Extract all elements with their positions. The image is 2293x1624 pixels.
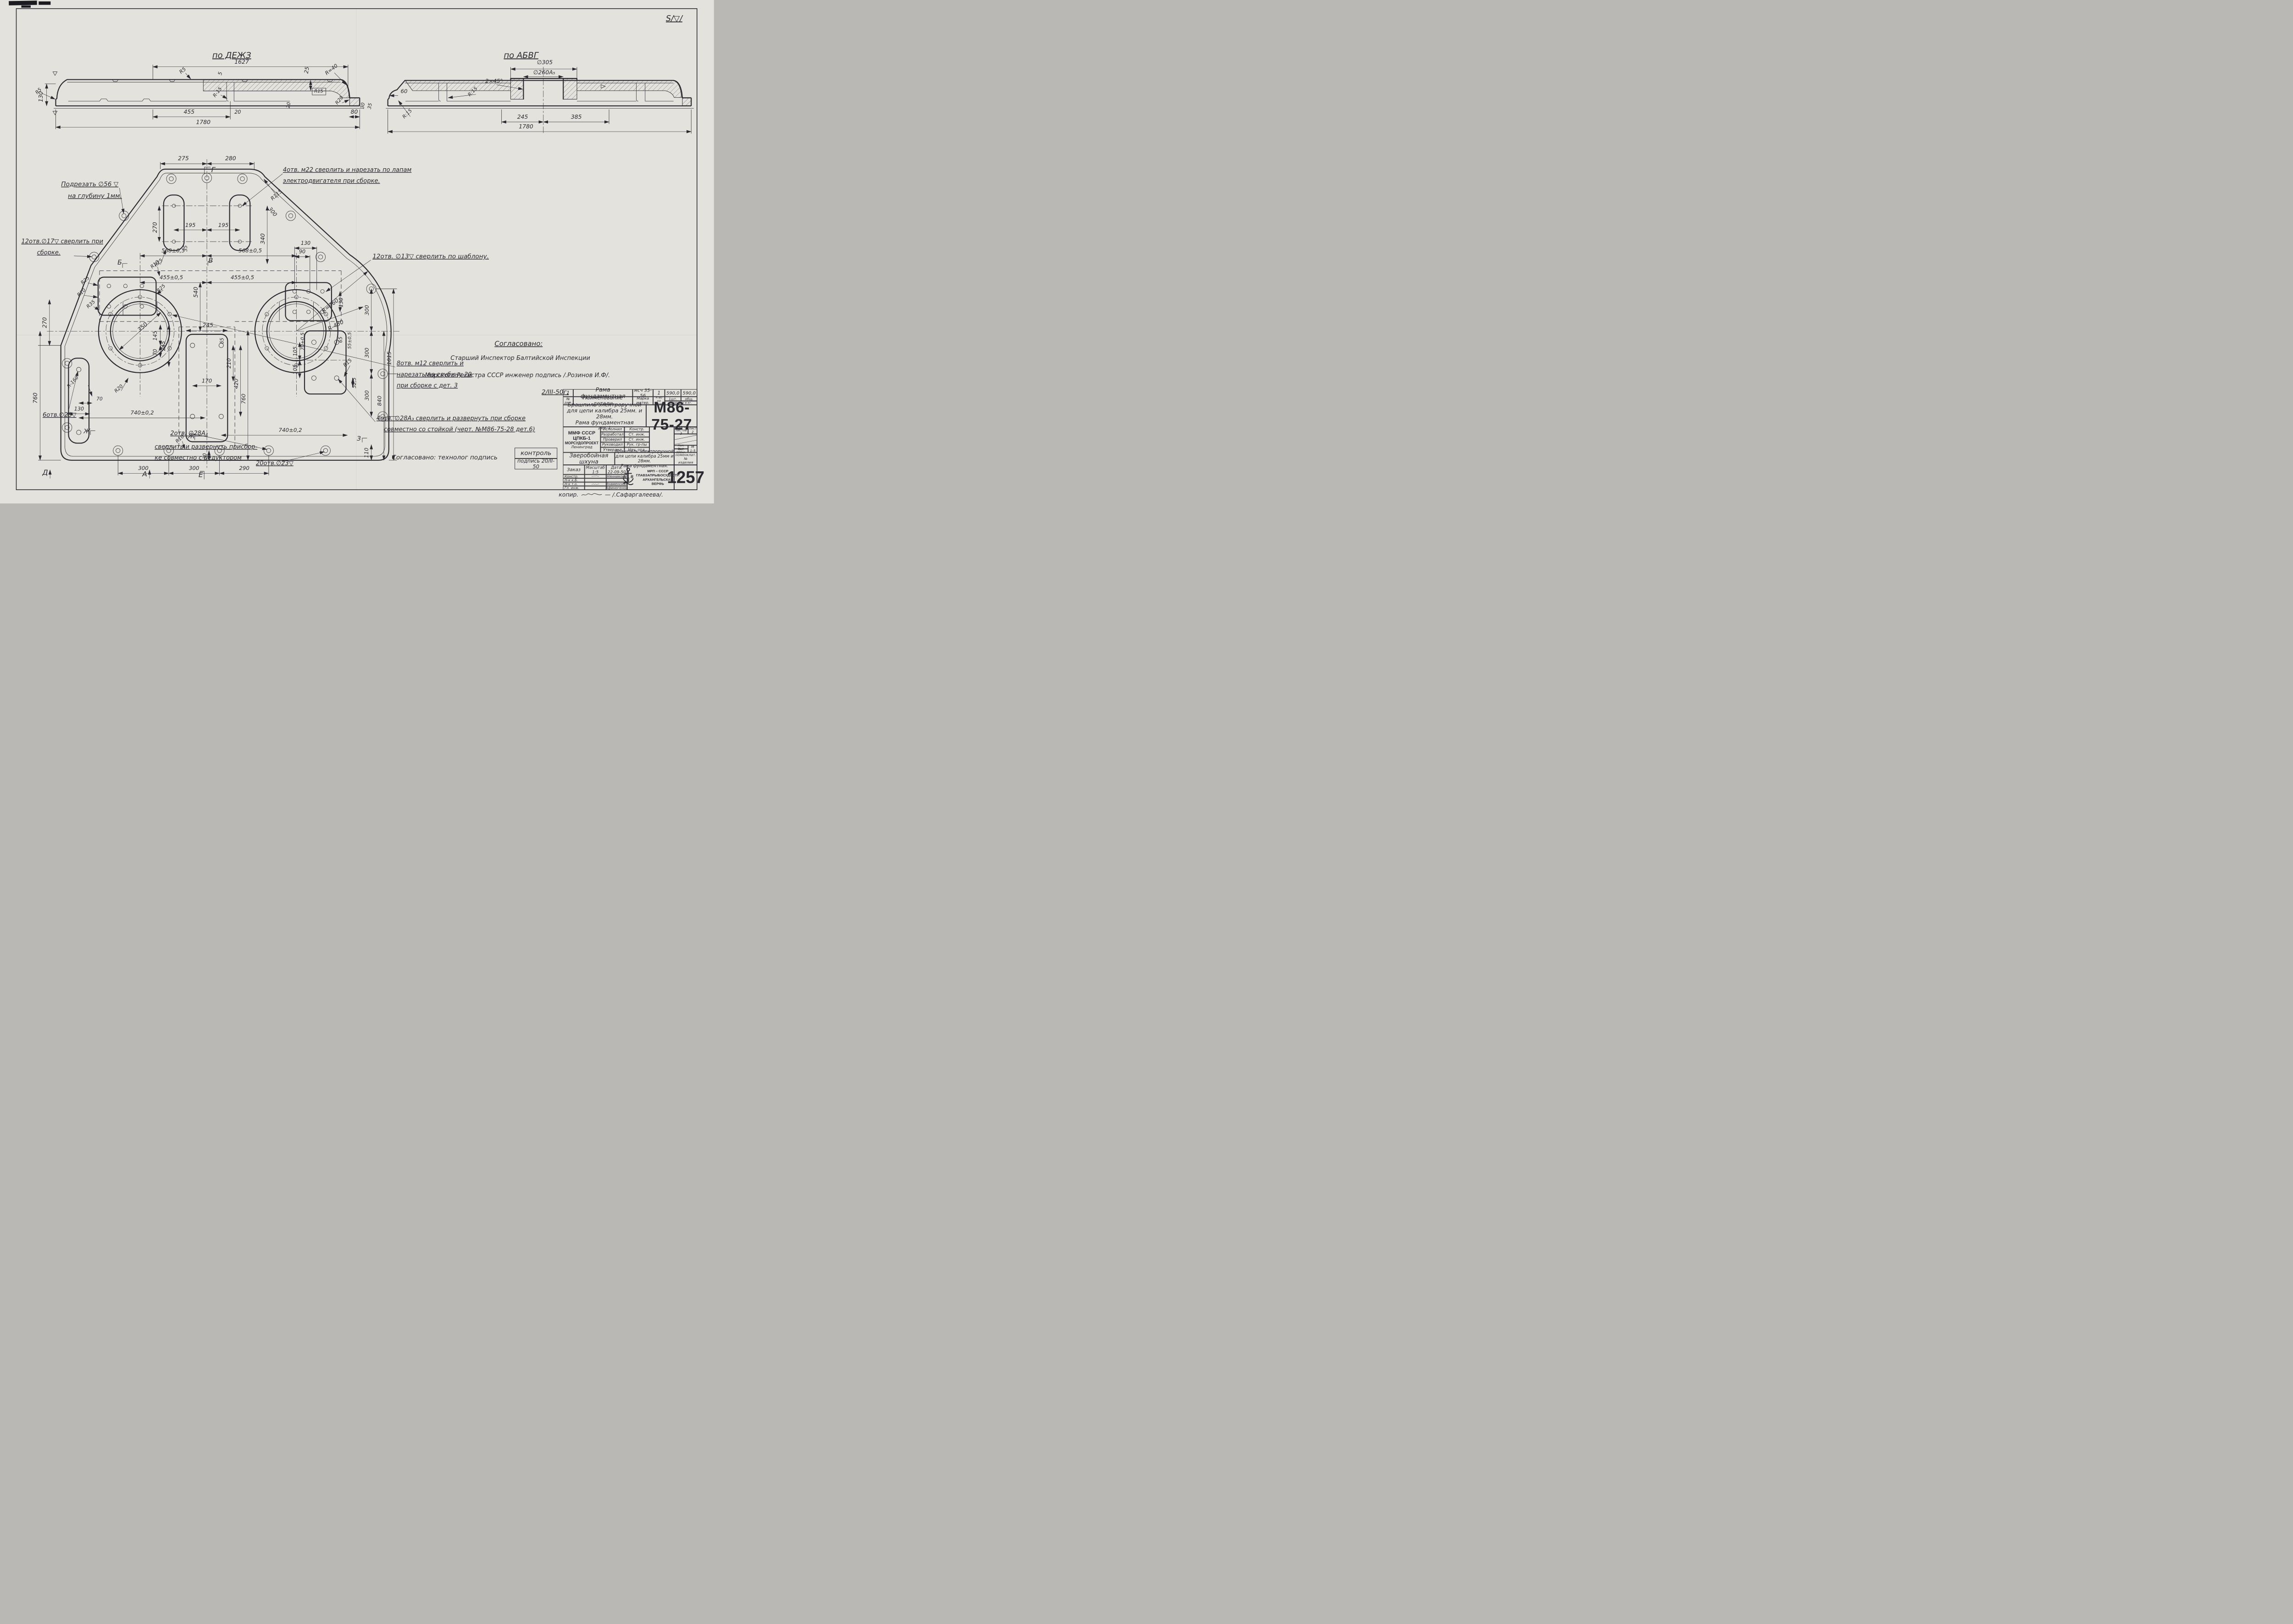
title-block: 1 Рама фундаментная мсч 35-56 1 590,0 59… bbox=[563, 389, 698, 490]
drawing-label: В bbox=[209, 257, 213, 265]
drawing-label: 105 bbox=[292, 347, 298, 356]
part-material: мсч 35-56 bbox=[633, 389, 654, 397]
drawing-label: 568±0,5 bbox=[161, 248, 185, 254]
drawing-label: R15 bbox=[342, 358, 353, 368]
drawing-label: 130 bbox=[74, 406, 84, 412]
role-title-3: Рук. гр-пы bbox=[625, 442, 650, 447]
drawing-label: Б bbox=[117, 259, 122, 266]
part-weight-each: 590,0 bbox=[665, 389, 681, 397]
drawing-label: ке совместно с редуктором bbox=[155, 455, 242, 462]
item-name: Брашпиль электроручной для цепи калибра … bbox=[615, 453, 674, 465]
nomenclature: номенклат. № изделия bbox=[674, 453, 698, 465]
drawing-label: 210 bbox=[226, 358, 232, 368]
drawing-label: R25 bbox=[156, 283, 167, 293]
drawing-label: 840 bbox=[376, 396, 382, 406]
drawing-label: Старший Инспектор Балтийской Инспекции bbox=[450, 355, 590, 362]
drawing-label: 4отв. ∅28А₃ сверлить и развернуть при сб… bbox=[377, 415, 526, 422]
drawing-label: 568±0,5 bbox=[238, 248, 262, 254]
drawing-label: 70 bbox=[152, 349, 158, 355]
signature-empty bbox=[585, 486, 606, 490]
drawing-label: 340 bbox=[259, 233, 266, 244]
drawing-label: 1780 bbox=[196, 118, 211, 125]
drawing-title-line1: Брашпиль электроручной bbox=[568, 402, 642, 408]
drawing-label: Подрезать ∅56 ▽ bbox=[61, 181, 118, 188]
drawing-label: 130 bbox=[301, 240, 310, 246]
order-label: Заказ bbox=[563, 465, 585, 475]
drawing-label: 300 bbox=[364, 348, 370, 358]
drawing-label: 245 bbox=[161, 341, 166, 351]
sheets-total: Всего листов 3 bbox=[674, 427, 688, 434]
drawing-label: 70±0,5 bbox=[300, 332, 305, 350]
drawing-label: 300 bbox=[364, 390, 370, 400]
role-title-2: Ст. инж. bbox=[625, 437, 650, 442]
drawing-label: 195 bbox=[185, 222, 195, 228]
drawing-label: ∅260А₅ bbox=[533, 69, 555, 76]
drawing-label: 20 bbox=[234, 109, 241, 115]
drawing-label: 110 bbox=[363, 447, 370, 458]
sign-label-3: Гл. инж. bbox=[563, 486, 585, 490]
drawing-label: Г bbox=[211, 166, 216, 174]
plan-view bbox=[38, 159, 399, 479]
drawing-label: электродвигателя при сборке. bbox=[283, 178, 380, 185]
drawing-title-line2: для цепи калибра 25мм. и 28мм. bbox=[564, 408, 646, 420]
scale2-label: Масштаб bbox=[586, 465, 605, 470]
drawing-label: 420 bbox=[233, 379, 239, 389]
drawing-label: R25 bbox=[80, 275, 91, 286]
drawing-label: ∅305 bbox=[537, 59, 553, 66]
drawing-label: 25 bbox=[303, 66, 310, 74]
drawing-label: Согласовано: технолог подпись bbox=[392, 454, 498, 461]
drawing-label: Ѕ/▽/ bbox=[666, 14, 683, 23]
role-title-0: Констр. bbox=[625, 427, 650, 432]
drawing-label: 1015 bbox=[386, 351, 393, 365]
drawing-label: 60 bbox=[401, 88, 408, 94]
inventory-number: 1257 bbox=[674, 465, 698, 490]
drawing-label: А bbox=[142, 470, 147, 478]
drawing-label: R10 bbox=[76, 287, 87, 298]
drawing-label: 12отв. ∅13▽ сверлить по шаблону. bbox=[372, 253, 489, 260]
drawing-label: 105 bbox=[292, 365, 298, 374]
control-stamp: контроль подпись 20/II-50 bbox=[515, 448, 557, 470]
drawing-label: 270 bbox=[41, 317, 48, 328]
drawing-label: совместно со стойкой (черт. №М86-75-28 д… bbox=[384, 426, 535, 433]
drawing-label: 20 bbox=[285, 102, 292, 109]
org-line3: МОРСУДОПРОЕКТ bbox=[565, 441, 598, 445]
vessel-line1: Зверобойная bbox=[570, 452, 609, 458]
drawing-label: 1780 bbox=[519, 123, 533, 130]
drawing-number: М86-75-27 bbox=[646, 405, 698, 427]
nomen-line2: изделия bbox=[678, 461, 693, 464]
org-line2: ЦПКБ-1 bbox=[573, 436, 591, 441]
drawing-label: 740±0,2 bbox=[130, 409, 154, 416]
role-1: Разработал bbox=[600, 432, 624, 437]
org-line1: ММФ СССР bbox=[568, 430, 595, 436]
drawing-label: R:15 bbox=[401, 108, 413, 120]
drawing-label: 270 bbox=[151, 222, 158, 233]
vessel-line2: шхуна bbox=[579, 458, 598, 465]
drawing-label: Ж bbox=[188, 433, 195, 440]
drawing-label: 245 bbox=[202, 322, 213, 329]
drawing-label: Согласовано: bbox=[494, 340, 543, 348]
drawing-label: 740±0,2 bbox=[279, 427, 302, 433]
drawing-label: 300 bbox=[364, 305, 370, 315]
item-line1: Брашпиль электроручной bbox=[615, 449, 674, 454]
copier-line: копир. — /.Сафаргалеева/. bbox=[559, 492, 672, 498]
drawing-label: 145 bbox=[152, 331, 158, 341]
scale2-value: 1:5 bbox=[592, 470, 598, 474]
drawing-title-line3: Рама фундаментная bbox=[576, 420, 634, 425]
org-city: Ленинград bbox=[571, 445, 593, 449]
drawing-label: 300 bbox=[189, 465, 199, 471]
drawing-label: 540 bbox=[192, 287, 199, 298]
drawing-label: на глубину 1мм. bbox=[68, 193, 122, 200]
item-line2: для цепи калибра 25мм и 28мм. bbox=[615, 454, 674, 464]
drawing-label: 245 bbox=[517, 113, 528, 120]
nomen-line1: номенклат. № bbox=[675, 453, 697, 461]
drawing-label: при сборке с дет. 3 bbox=[397, 382, 458, 389]
drawing-label: 30 bbox=[360, 102, 366, 109]
drawing-label: Морского Регистра СССР инженер подпись /… bbox=[425, 372, 610, 379]
date-label: Дата: bbox=[611, 465, 622, 470]
drawing-label: 2×45° bbox=[485, 77, 503, 84]
drawing-label: 35 bbox=[367, 102, 373, 110]
sign-label-2: Н-к т.о. bbox=[563, 482, 585, 486]
drawing-label: R35 bbox=[86, 299, 97, 309]
drawing-label: 280 bbox=[225, 155, 236, 162]
control-stamp-title: контроль bbox=[515, 448, 557, 459]
logo-letters: А bbox=[622, 475, 626, 479]
part-no: 1 bbox=[563, 389, 573, 397]
drawing-label: 6отв.∅28▽ bbox=[43, 412, 77, 419]
edge-lugs bbox=[62, 173, 388, 456]
drawing-label: 80 bbox=[351, 108, 358, 115]
role-3: Руководил bbox=[600, 442, 624, 447]
shipyard-logo-anchor-icon: А С В bbox=[622, 467, 635, 488]
drawing-label: 300 bbox=[267, 206, 278, 218]
drawing-label: 65 bbox=[219, 337, 225, 344]
vessel-name: Зверобойная шхуна bbox=[563, 453, 615, 465]
drawing-label: 5 bbox=[217, 71, 223, 76]
drawing-title: Брашпиль электроручной для цепи калибра … bbox=[563, 405, 646, 427]
drawing-label: R=40 bbox=[324, 63, 339, 77]
copier-label: копир. bbox=[559, 492, 578, 498]
right-bore-circle bbox=[255, 271, 368, 373]
scale-block: Масштаб 1:5 bbox=[585, 465, 606, 475]
organisation: ММФ СССР ЦПКБ-1 МОРСУДОПРОЕКТ Ленинград bbox=[563, 427, 601, 453]
drawing-label: З bbox=[357, 435, 361, 442]
drawing-label: 4отв. м22 сверлить и нарезать по лапам bbox=[283, 166, 412, 173]
drawing-label: Е bbox=[199, 470, 203, 479]
drawing-label: 65 bbox=[338, 337, 343, 343]
control-stamp-signature: подпись 20/II-50 bbox=[515, 458, 557, 470]
drawing-label: R20 bbox=[113, 383, 124, 394]
role-2: Проверил bbox=[600, 437, 624, 442]
svg-text:В: В bbox=[631, 475, 633, 479]
role-title-1: Ст. инж. bbox=[625, 432, 650, 437]
drawing-label: Д bbox=[42, 468, 48, 476]
drawing-label: 455 bbox=[183, 108, 194, 115]
drawing-label: 195 bbox=[218, 222, 228, 228]
copier-name: — /.Сафаргалеева/. bbox=[605, 492, 663, 498]
drawing-label: 455±0,5 bbox=[160, 274, 183, 281]
drawing-label: 55±0,5 bbox=[348, 332, 353, 349]
drawing-label: сверлить и развернуть присбор- bbox=[155, 443, 257, 450]
drawing-label: 290 bbox=[239, 465, 249, 471]
drawing-label: R-430 bbox=[327, 318, 345, 332]
drawing-label: по АБВГ bbox=[504, 50, 539, 60]
drawing-label: R15 bbox=[314, 89, 323, 94]
blueprint-sheet: по ДЕЖЗ1627130R5525R=40R-15R15R20R520455… bbox=[0, 0, 714, 503]
signature-scribble bbox=[585, 475, 606, 478]
drawing-label: 385 bbox=[571, 113, 582, 120]
drawing-label: 52,5 bbox=[352, 377, 357, 388]
drawing-label: 12отв.∅17▽ сверлить при bbox=[22, 238, 103, 245]
signature-empty bbox=[585, 478, 606, 482]
drawing-label: 30 bbox=[202, 453, 208, 459]
drawing-label: 1627 bbox=[234, 58, 249, 65]
drawing-label: R115 bbox=[270, 188, 283, 202]
drawing-label: 275 bbox=[178, 155, 189, 162]
drawing-label: 70 bbox=[96, 397, 103, 402]
svg-text:С: С bbox=[627, 477, 630, 481]
weight-cell: Вес 590кг. bbox=[674, 449, 688, 453]
signature-scribble bbox=[585, 482, 606, 486]
sheet-number: Лист 2 bbox=[688, 427, 697, 434]
drawing-label: 20отв.∅23▽ bbox=[256, 460, 294, 467]
scale-cell: М 1:5 bbox=[688, 445, 697, 453]
drawing-label: 170 bbox=[202, 378, 212, 384]
part-weight-total: 590,0 bbox=[681, 389, 698, 397]
role-0: Исполнил bbox=[600, 427, 624, 432]
drawing-label: сборке. bbox=[37, 249, 61, 256]
drawing-label: 760 bbox=[240, 394, 247, 404]
drawing-label: 455±0,5 bbox=[231, 274, 254, 281]
section-view-abvg bbox=[386, 67, 693, 134]
drawing-label: 760 bbox=[32, 392, 39, 403]
drawing-label: Ж bbox=[83, 428, 91, 435]
copier-signature-scribble bbox=[581, 492, 603, 497]
drawing-label: 90 bbox=[299, 249, 305, 254]
